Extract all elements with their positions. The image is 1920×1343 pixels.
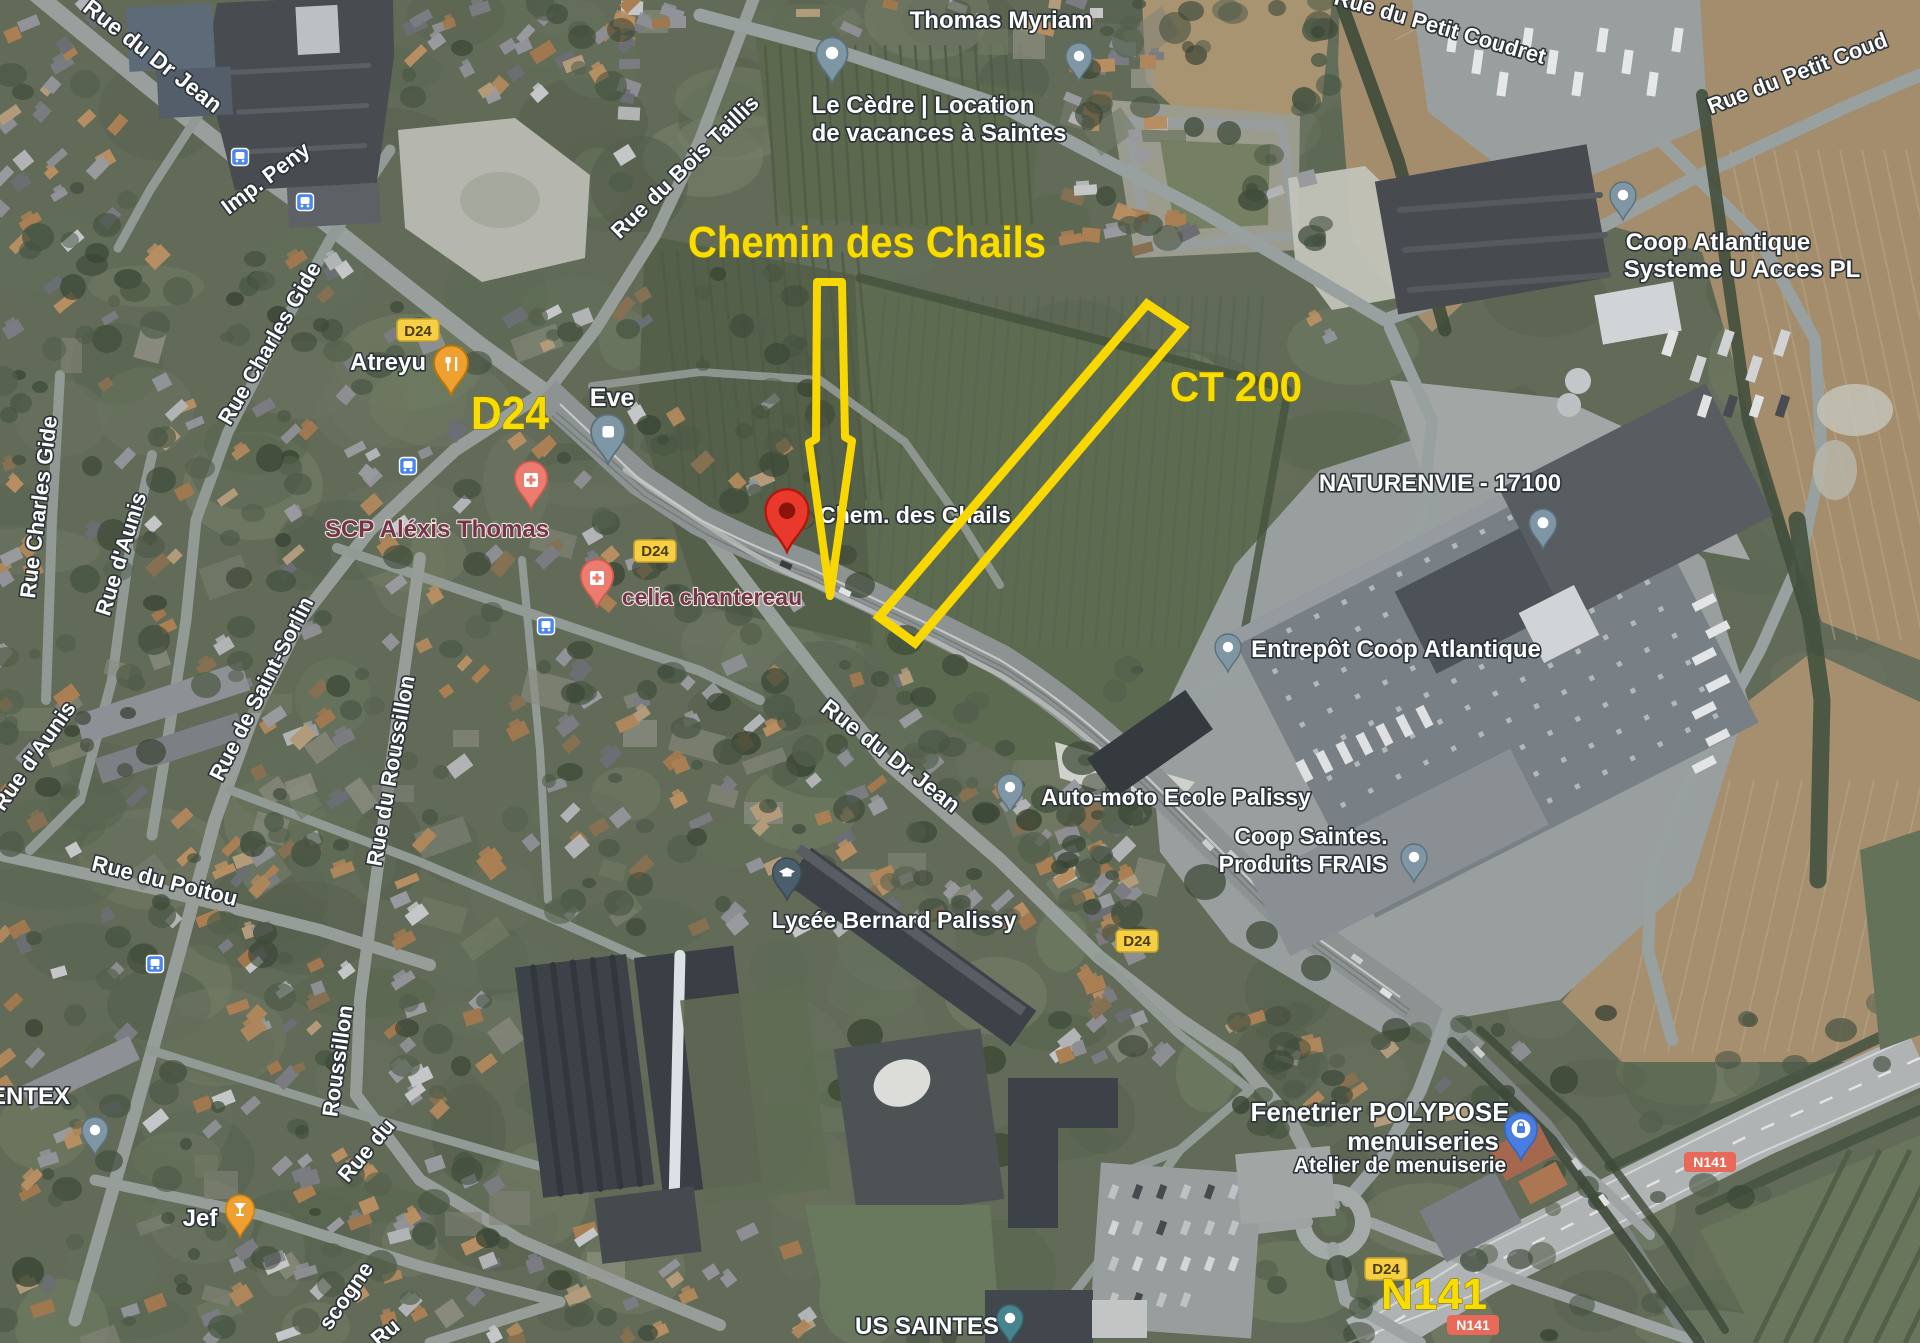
svg-text:Auto-moto Ecole Palissy: Auto-moto Ecole Palissy: [1041, 784, 1311, 810]
svg-text:D24: D24: [1123, 933, 1151, 950]
svg-text:D24: D24: [404, 323, 432, 340]
svg-text:ENTEX: ENTEX: [0, 1083, 70, 1110]
svg-text:N141: N141: [1693, 1154, 1727, 1170]
svg-text:Atelier de menuiserie: Atelier de menuiserie: [1294, 1154, 1506, 1177]
svg-text:Lycée Bernard Palissy: Lycée Bernard Palissy: [772, 907, 1017, 933]
svg-text:Le Cèdre | Location: Le Cèdre | Location: [812, 92, 1035, 119]
svg-text:SCP Aléxis Thomas: SCP Aléxis Thomas: [325, 516, 549, 543]
svg-text:menuiseries: menuiseries: [1347, 1126, 1499, 1156]
svg-text:CT 200: CT 200: [1170, 363, 1302, 410]
svg-text:Fenetrier POLYPOSE: Fenetrier POLYPOSE: [1250, 1097, 1509, 1127]
svg-text:US SAINTES: US SAINTES: [855, 1313, 999, 1340]
svg-text:D24: D24: [471, 387, 549, 439]
svg-text:Chemin des Chails: Chemin des Chails: [688, 218, 1046, 267]
svg-text:Jef: Jef: [183, 1205, 219, 1232]
svg-text:Systeme U Acces PL: Systeme U Acces PL: [1624, 256, 1861, 283]
svg-text:N141: N141: [1456, 1317, 1490, 1333]
svg-text:N141: N141: [1381, 1270, 1487, 1319]
svg-text:Coop Saintes.: Coop Saintes.: [1234, 823, 1387, 849]
svg-text:Thomas Myriam: Thomas Myriam: [910, 7, 1093, 34]
svg-text:celia chantereau: celia chantereau: [622, 584, 802, 610]
svg-text:Chem. des Chails: Chem. des Chails: [819, 502, 1011, 528]
svg-text:Eve: Eve: [590, 384, 635, 412]
svg-text:Coop Atlantique: Coop Atlantique: [1626, 229, 1810, 256]
svg-text:Produits FRAIS: Produits FRAIS: [1219, 851, 1388, 877]
svg-text:Entrepôt Coop Atlantique: Entrepôt Coop Atlantique: [1251, 636, 1541, 663]
svg-text:de vacances à Saintes: de vacances à Saintes: [812, 120, 1067, 147]
svg-text:Atreyu: Atreyu: [350, 349, 426, 376]
svg-text:D24: D24: [641, 543, 669, 560]
svg-text:NATURENVIE - 17100: NATURENVIE - 17100: [1319, 470, 1561, 497]
